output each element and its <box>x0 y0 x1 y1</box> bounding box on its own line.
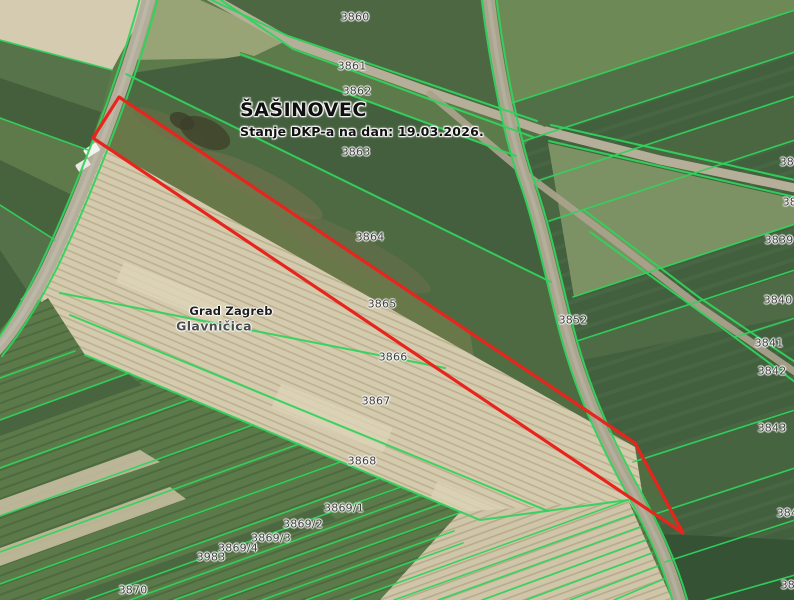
map-canvas[interactable]: ŠAŠINOVEC Stanje DKP-a na dan: 19.03.202… <box>0 0 794 600</box>
aerial-basemap <box>0 0 794 600</box>
